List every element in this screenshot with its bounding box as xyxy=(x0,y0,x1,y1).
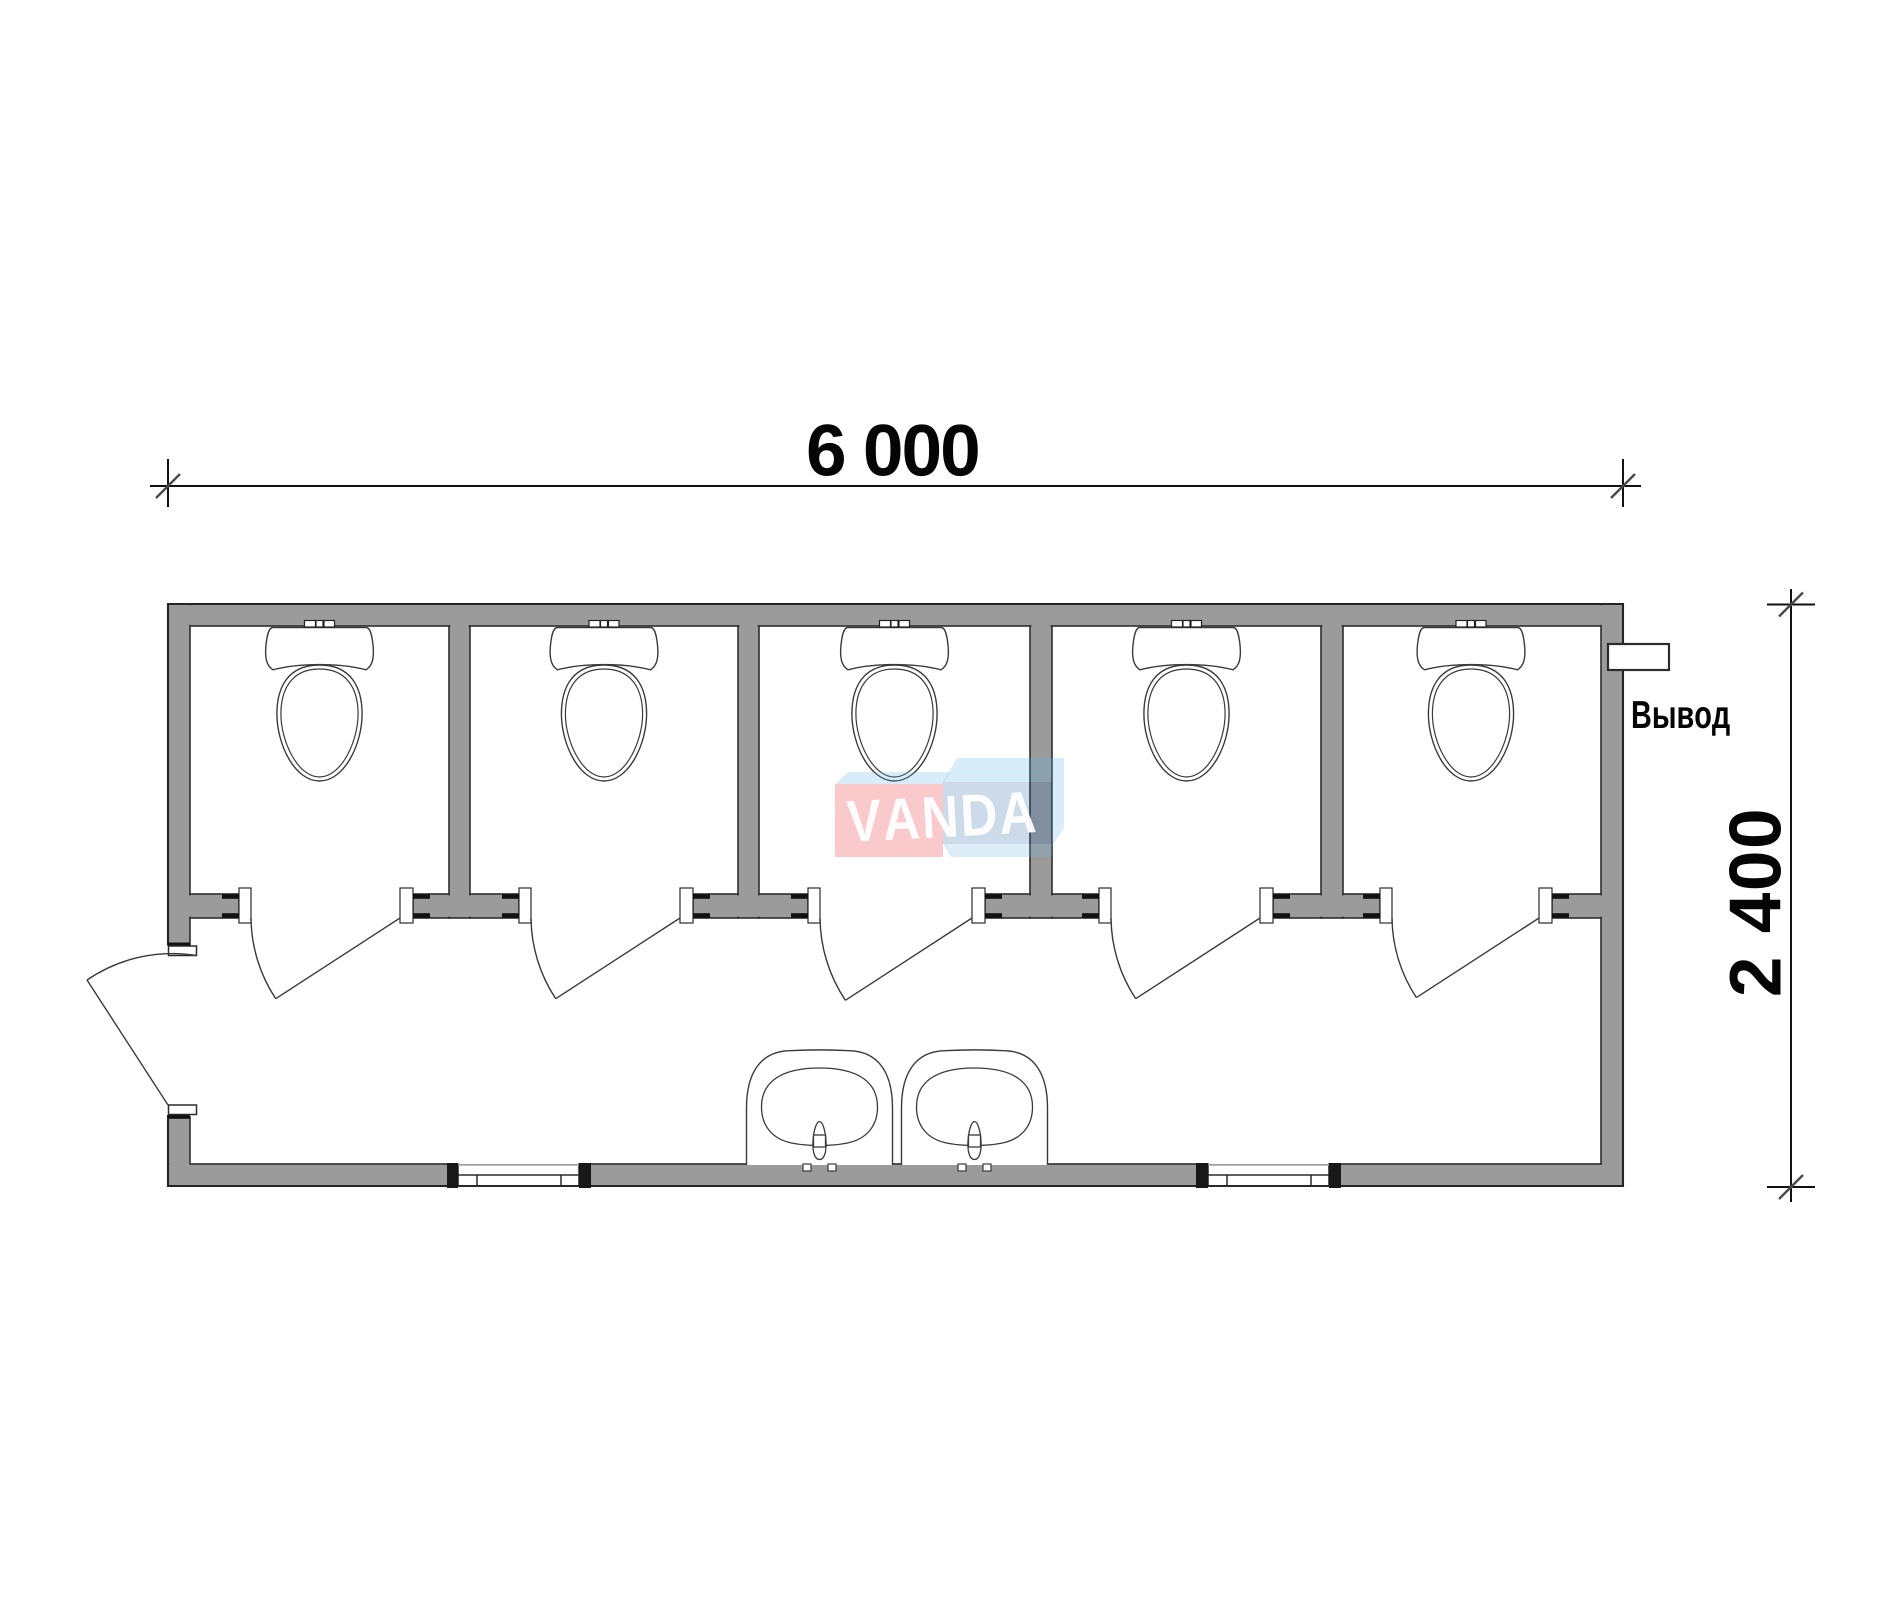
svg-text:VANDA: VANDA xyxy=(845,779,1039,855)
svg-text:Вывод: Вывод xyxy=(1631,694,1730,737)
svg-text:2 400: 2 400 xyxy=(1716,807,1797,997)
svg-text:6 000: 6 000 xyxy=(806,410,979,491)
